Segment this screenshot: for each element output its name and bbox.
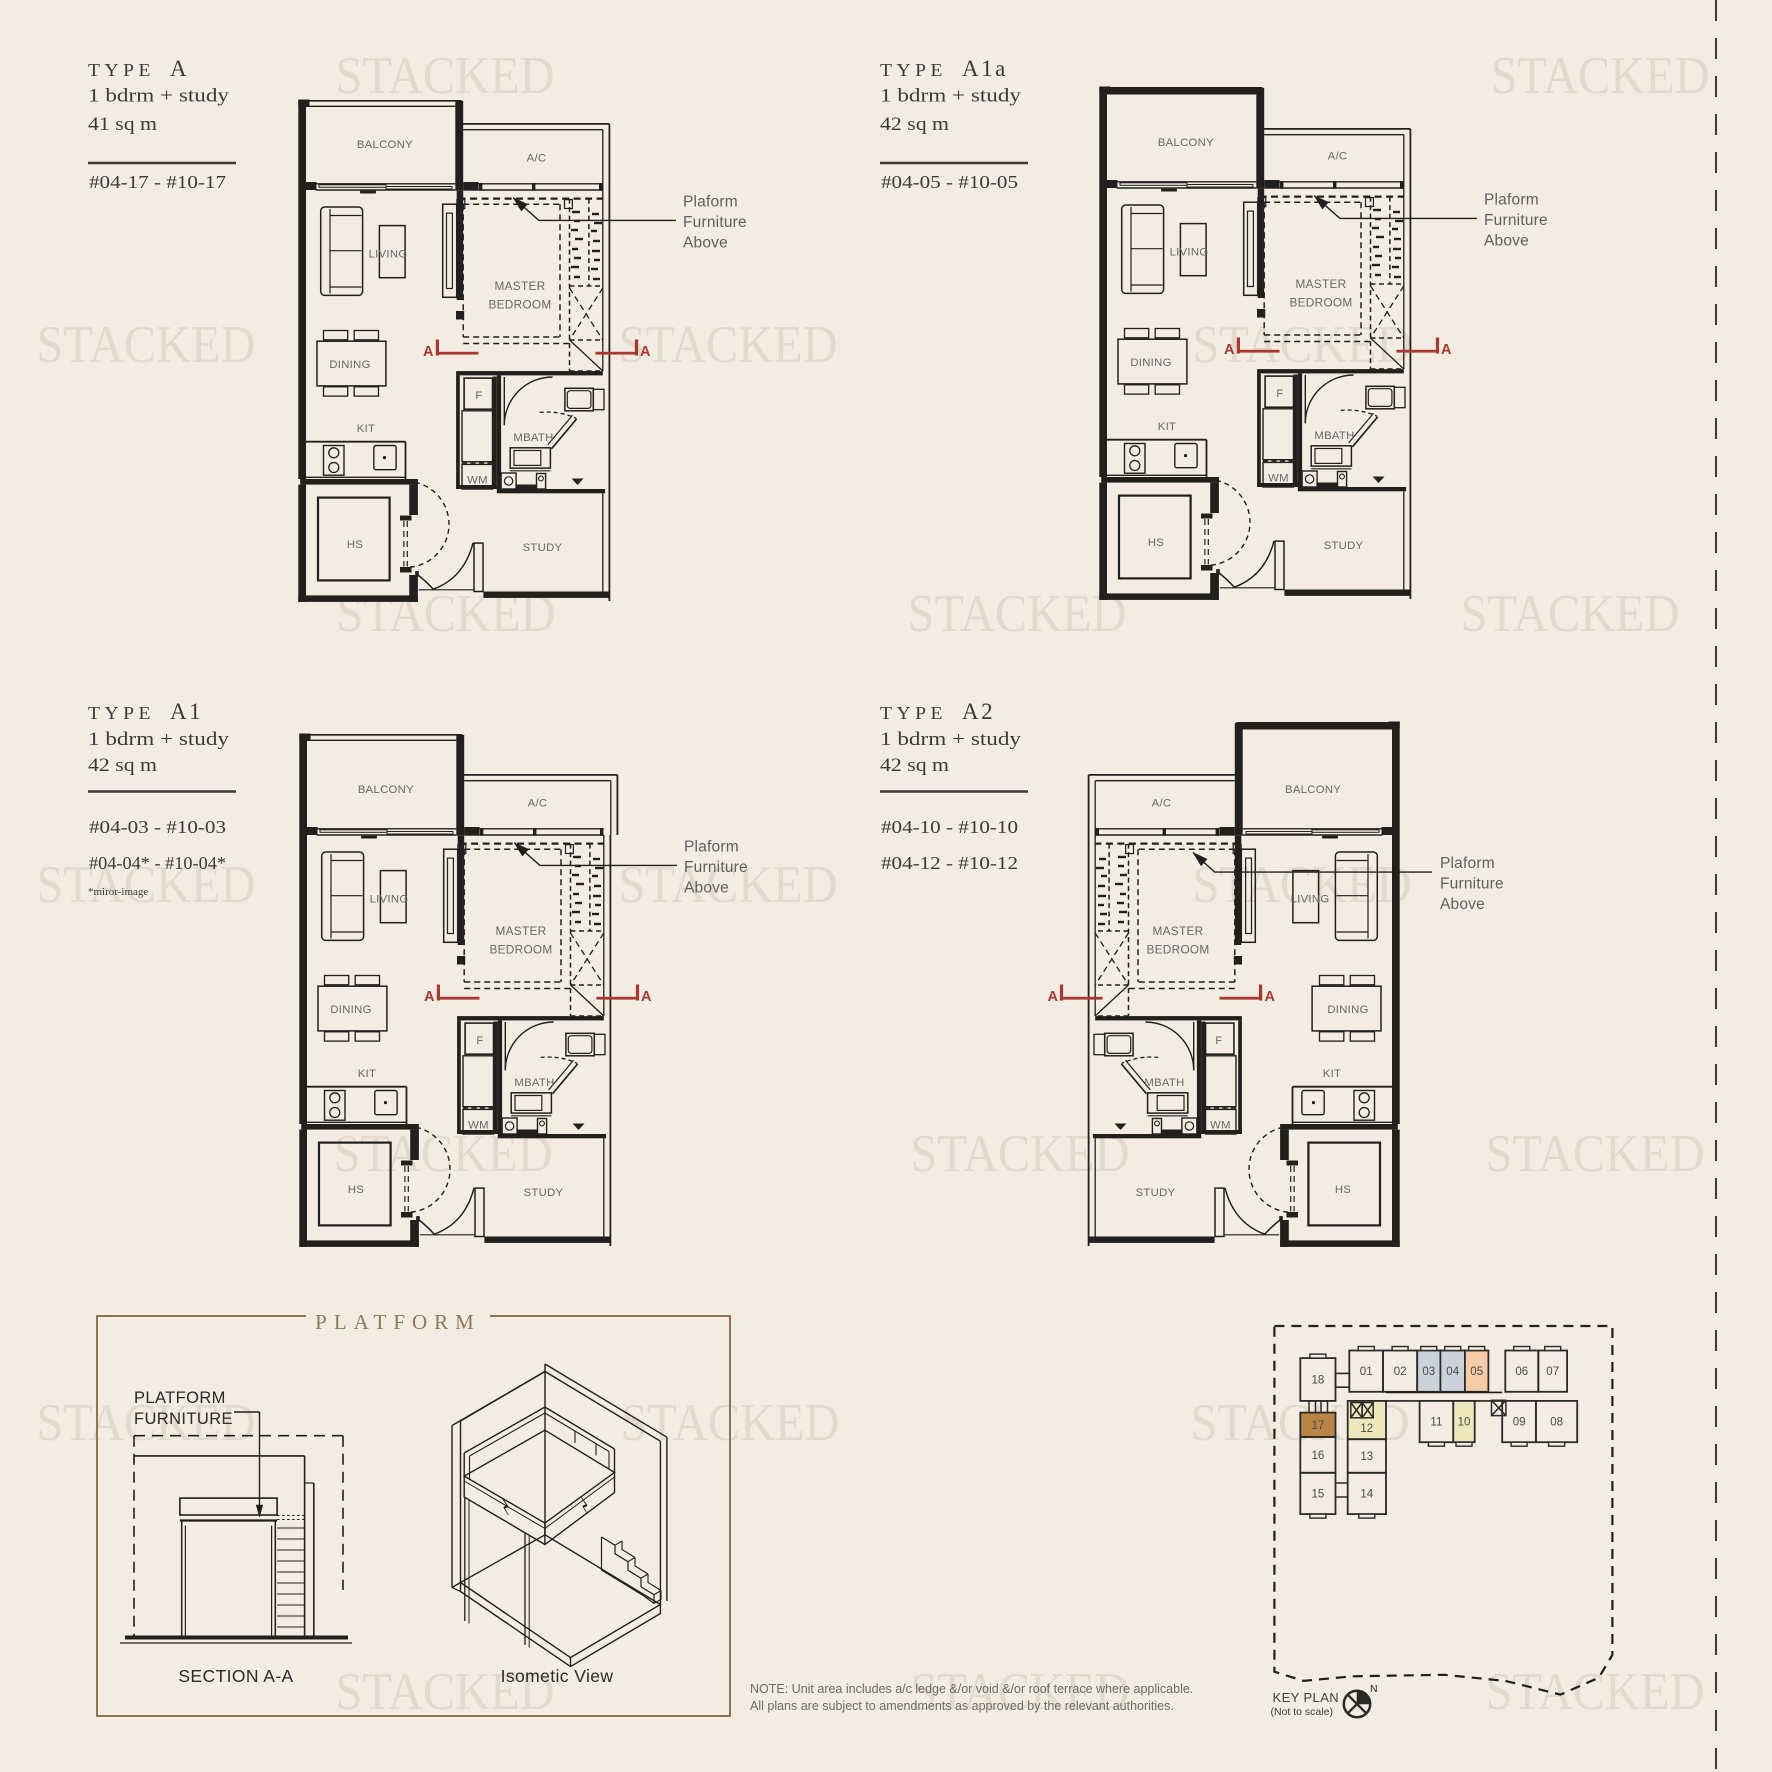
- svg-text:LIVING: LIVING: [369, 249, 408, 261]
- svg-text:1 bdrm + study: 1 bdrm + study: [88, 87, 230, 107]
- svg-text:TYPE: TYPE: [88, 60, 155, 80]
- svg-text:DINING: DINING: [329, 359, 370, 371]
- svg-text:A: A: [170, 56, 189, 81]
- svg-text:#04-03 - #10-03: #04-03 - #10-03: [89, 817, 226, 837]
- svg-text:A: A: [1441, 342, 1452, 358]
- svg-text:HS: HS: [348, 1184, 364, 1196]
- svg-text:*miror-image: *miror-image: [88, 886, 148, 898]
- svg-text:11: 11: [1430, 1417, 1442, 1429]
- svg-text:TYPE: TYPE: [880, 60, 947, 80]
- svg-text:Plaform: Plaform: [683, 194, 738, 211]
- svg-text:42 sq m: 42 sq m: [880, 756, 950, 776]
- svg-text:06: 06: [1515, 1366, 1528, 1378]
- svg-text:A: A: [640, 344, 651, 360]
- svg-text:Furniture: Furniture: [684, 859, 748, 876]
- svg-text:Above: Above: [683, 235, 728, 252]
- svg-text:WM: WM: [1268, 473, 1289, 485]
- svg-text:WM: WM: [1210, 1120, 1231, 1132]
- svg-text:LIVING: LIVING: [1291, 894, 1330, 906]
- svg-text:#04-04* - #10-04*: #04-04* - #10-04*: [89, 853, 226, 873]
- svg-text:HS: HS: [1148, 537, 1164, 549]
- svg-text:MASTER: MASTER: [1296, 277, 1347, 291]
- svg-text:BEDROOM: BEDROOM: [489, 943, 552, 957]
- svg-text:12: 12: [1360, 1423, 1373, 1435]
- svg-text:LIVING: LIVING: [1170, 247, 1209, 259]
- svg-text:#04-17 - #10-17: #04-17 - #10-17: [89, 172, 226, 192]
- svg-text:10: 10: [1458, 1417, 1471, 1429]
- svg-text:Furniture: Furniture: [683, 214, 747, 231]
- svg-text:Above: Above: [684, 880, 729, 897]
- svg-text:A: A: [1048, 989, 1059, 1005]
- svg-text:A: A: [423, 344, 434, 360]
- svg-text:DINING: DINING: [1130, 357, 1171, 369]
- svg-text:F: F: [1276, 388, 1283, 400]
- svg-text:BALCONY: BALCONY: [1158, 137, 1214, 149]
- svg-text:08: 08: [1550, 1417, 1563, 1429]
- svg-text:05: 05: [1470, 1366, 1483, 1378]
- svg-text:Above: Above: [1440, 896, 1485, 913]
- svg-text:A/C: A/C: [528, 798, 548, 810]
- svg-text:DINING: DINING: [1327, 1004, 1368, 1016]
- svg-text:DINING: DINING: [330, 1004, 371, 1016]
- svg-text:HS: HS: [347, 539, 363, 551]
- svg-text:TYPE: TYPE: [880, 703, 947, 723]
- svg-text:02: 02: [1394, 1366, 1407, 1378]
- svg-text:STUDY: STUDY: [1324, 540, 1364, 552]
- svg-text:FURNITURE: FURNITURE: [134, 1410, 233, 1428]
- svg-text:STACKED: STACKED: [1491, 47, 1710, 105]
- svg-text:All plans are subject to amend: All plans are subject to amendments as a…: [750, 1699, 1174, 1713]
- svg-text:MBATH: MBATH: [1314, 430, 1354, 442]
- svg-text:STUDY: STUDY: [1136, 1187, 1176, 1199]
- svg-text:STUDY: STUDY: [523, 542, 563, 554]
- svg-text:STACKED: STACKED: [1486, 1125, 1705, 1183]
- svg-text:MBATH: MBATH: [513, 432, 553, 444]
- svg-text:Isometic View: Isometic View: [501, 1666, 614, 1686]
- svg-text:STACKED: STACKED: [336, 47, 555, 105]
- svg-text:A/C: A/C: [1328, 151, 1348, 163]
- svg-text:TYPE: TYPE: [88, 703, 155, 723]
- svg-text:WM: WM: [468, 1120, 489, 1132]
- svg-text:Furniture: Furniture: [1484, 212, 1548, 229]
- svg-text:PLATFORM: PLATFORM: [134, 1389, 226, 1407]
- svg-text:41 sq m: 41 sq m: [88, 115, 158, 135]
- svg-text:42 sq m: 42 sq m: [88, 756, 158, 776]
- svg-text:A: A: [424, 989, 435, 1005]
- svg-text:#04-10 - #10-10: #04-10 - #10-10: [881, 817, 1018, 837]
- svg-text:N: N: [1370, 1683, 1378, 1695]
- svg-text:A1: A1: [170, 699, 203, 724]
- svg-text:BEDROOM: BEDROOM: [1289, 296, 1352, 310]
- svg-text:PLATFORM: PLATFORM: [315, 1310, 481, 1334]
- svg-text:STACKED: STACKED: [1461, 585, 1680, 643]
- svg-text:07: 07: [1546, 1366, 1559, 1378]
- svg-text:BALCONY: BALCONY: [1285, 784, 1341, 796]
- svg-text:16: 16: [1312, 1450, 1325, 1462]
- svg-text:Furniture: Furniture: [1440, 876, 1504, 893]
- svg-text:Plaform: Plaform: [1440, 855, 1495, 872]
- svg-text:1 bdrm + study: 1 bdrm + study: [88, 730, 230, 750]
- svg-text:Above: Above: [1484, 233, 1529, 250]
- svg-text:STACKED: STACKED: [619, 316, 838, 374]
- svg-text:KIT: KIT: [1323, 1068, 1341, 1080]
- svg-text:Plaform: Plaform: [684, 839, 739, 856]
- svg-text:1 bdrm + study: 1 bdrm + study: [880, 730, 1022, 750]
- svg-text:KIT: KIT: [1158, 421, 1176, 433]
- svg-text:A1a: A1a: [962, 56, 1008, 81]
- svg-text:WM: WM: [467, 475, 488, 487]
- svg-text:14: 14: [1360, 1488, 1373, 1500]
- svg-text:STUDY: STUDY: [524, 1187, 564, 1199]
- svg-text:KIT: KIT: [357, 423, 375, 435]
- svg-text:STACKED: STACKED: [37, 316, 256, 374]
- svg-text:13: 13: [1360, 1451, 1373, 1463]
- svg-text:01: 01: [1360, 1366, 1373, 1378]
- svg-text:MASTER: MASTER: [495, 279, 546, 293]
- svg-text:BEDROOM: BEDROOM: [1146, 943, 1209, 957]
- svg-text:04: 04: [1446, 1366, 1459, 1378]
- svg-text:NOTE: Unit area includes a/c l: NOTE: Unit area includes a/c ledge &/or …: [750, 1682, 1193, 1696]
- svg-text:Plaform: Plaform: [1484, 192, 1539, 209]
- svg-text:STACKED: STACKED: [911, 1125, 1130, 1183]
- svg-text:15: 15: [1312, 1488, 1325, 1500]
- svg-text:A: A: [1265, 989, 1276, 1005]
- svg-text:42 sq m: 42 sq m: [880, 115, 950, 135]
- svg-text:MASTER: MASTER: [1153, 924, 1204, 938]
- svg-text:(Not to scale): (Not to scale): [1271, 1706, 1333, 1718]
- svg-text:#04-12 - #10-12: #04-12 - #10-12: [881, 853, 1018, 873]
- svg-text:SECTION A-A: SECTION A-A: [178, 1666, 293, 1686]
- svg-text:KEY PLAN: KEY PLAN: [1273, 1690, 1340, 1705]
- svg-text:BALCONY: BALCONY: [358, 784, 414, 796]
- svg-text:BALCONY: BALCONY: [357, 139, 413, 151]
- svg-text:F: F: [1215, 1035, 1222, 1047]
- svg-text:09: 09: [1513, 1417, 1526, 1429]
- svg-text:BEDROOM: BEDROOM: [488, 298, 551, 312]
- svg-text:KIT: KIT: [358, 1068, 376, 1080]
- svg-text:A: A: [1224, 342, 1235, 358]
- svg-text:18: 18: [1312, 1375, 1325, 1387]
- svg-text:A2: A2: [962, 699, 995, 724]
- svg-text:HS: HS: [1335, 1184, 1351, 1196]
- svg-text:MBATH: MBATH: [1144, 1077, 1184, 1089]
- svg-text:MASTER: MASTER: [496, 924, 547, 938]
- svg-text:LIVING: LIVING: [370, 894, 409, 906]
- svg-text:A: A: [641, 989, 652, 1005]
- svg-text:A/C: A/C: [1152, 798, 1172, 810]
- svg-text:A/C: A/C: [527, 153, 547, 165]
- svg-text:STACKED: STACKED: [908, 585, 1127, 643]
- svg-text:STACKED: STACKED: [1486, 1663, 1705, 1721]
- svg-text:03: 03: [1422, 1366, 1435, 1378]
- svg-text:17: 17: [1312, 1420, 1325, 1432]
- svg-text:F: F: [476, 1035, 483, 1047]
- svg-text:1 bdrm + study: 1 bdrm + study: [880, 87, 1022, 107]
- svg-text:F: F: [475, 390, 482, 402]
- svg-text:#04-05 - #10-05: #04-05 - #10-05: [881, 172, 1018, 192]
- svg-text:MBATH: MBATH: [514, 1077, 554, 1089]
